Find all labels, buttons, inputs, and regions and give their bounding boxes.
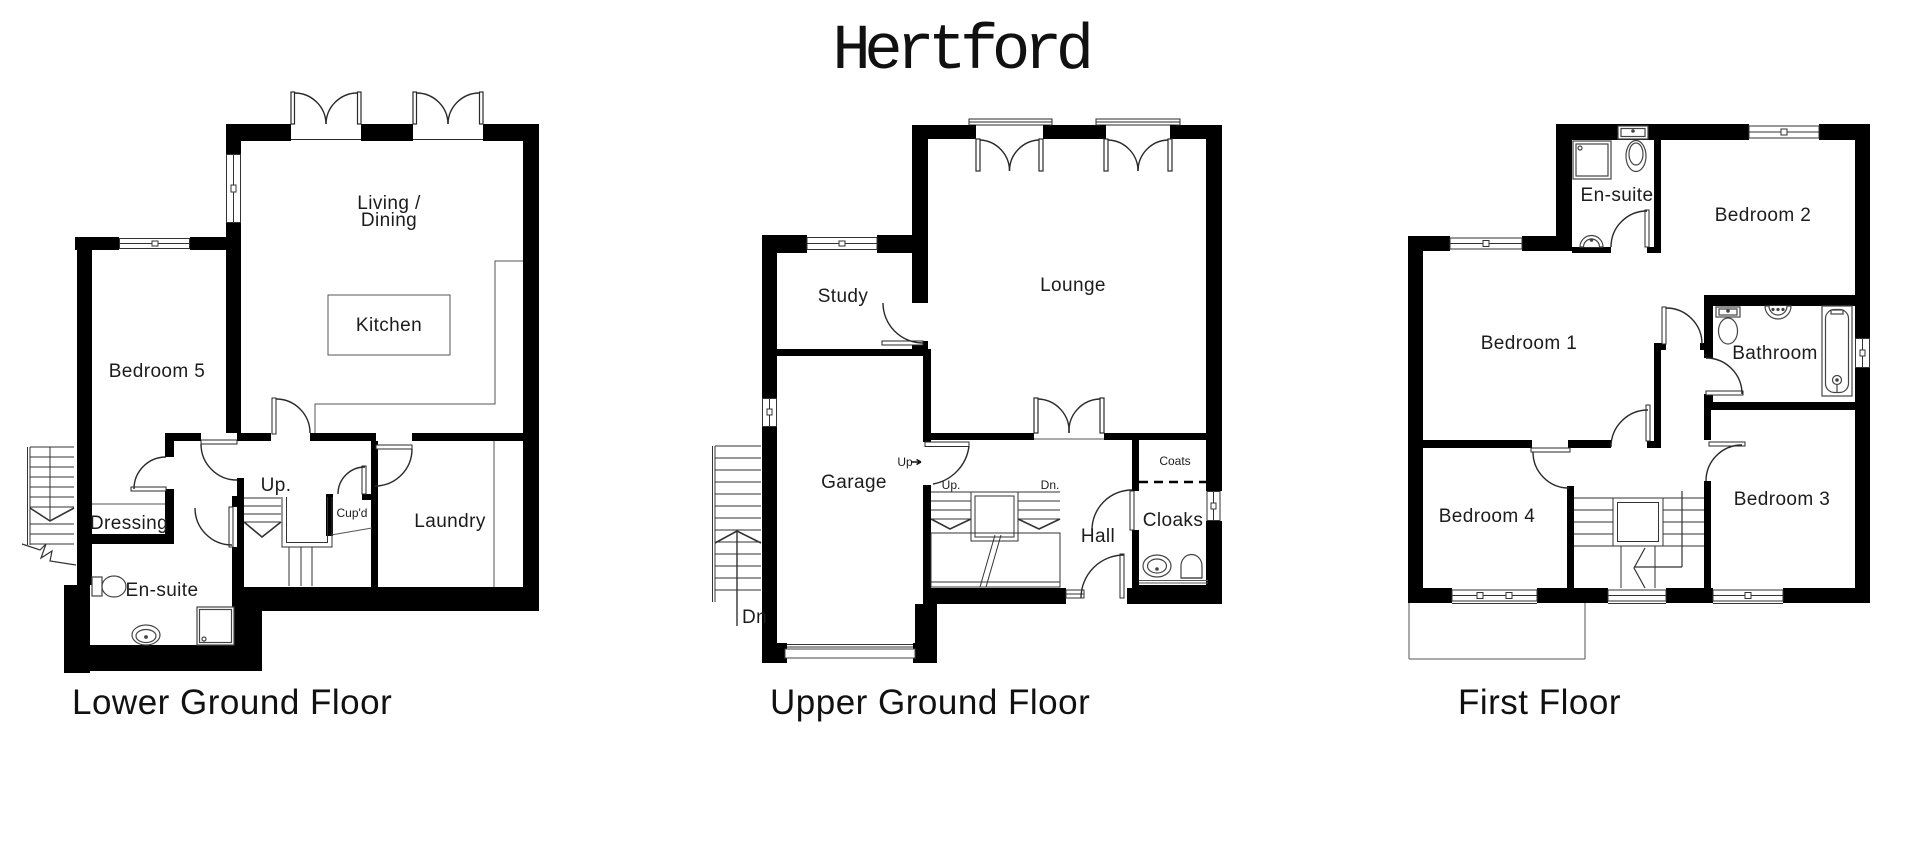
svg-text:Dressing: Dressing xyxy=(90,513,168,534)
svg-text:Garage: Garage xyxy=(821,472,887,493)
svg-text:Upper Ground Floor: Upper Ground Floor xyxy=(770,683,1090,722)
svg-text:En-suite: En-suite xyxy=(126,580,199,601)
svg-text:Hertford: Hertford xyxy=(832,16,1088,88)
svg-text:Up.: Up. xyxy=(261,475,292,496)
svg-text:Dining: Dining xyxy=(361,210,417,231)
svg-text:Lower Ground Floor: Lower Ground Floor xyxy=(72,683,392,722)
svg-text:En-suite: En-suite xyxy=(1581,185,1654,206)
svg-text:Laundry: Laundry xyxy=(414,511,486,532)
svg-text:Dn.: Dn. xyxy=(1041,478,1060,492)
svg-text:Bathroom: Bathroom xyxy=(1732,343,1818,364)
svg-text:First Floor: First Floor xyxy=(1458,683,1621,722)
svg-text:Up.: Up. xyxy=(942,478,961,492)
svg-text:Bedroom 2: Bedroom 2 xyxy=(1715,205,1812,226)
svg-text:Coats: Coats xyxy=(1159,454,1190,468)
svg-text:Bedroom 5: Bedroom 5 xyxy=(109,361,206,382)
svg-text:Cloaks: Cloaks xyxy=(1143,510,1203,531)
svg-text:Study: Study xyxy=(818,286,869,307)
svg-text:Up: Up xyxy=(897,455,913,469)
svg-text:Dn: Dn xyxy=(742,607,767,628)
svg-text:Bedroom 4: Bedroom 4 xyxy=(1439,506,1536,527)
svg-text:Hall: Hall xyxy=(1081,526,1115,547)
svg-text:Lounge: Lounge xyxy=(1040,275,1106,296)
svg-text:Bedroom 3: Bedroom 3 xyxy=(1734,489,1831,510)
svg-text:Cup'd: Cup'd xyxy=(337,506,368,520)
svg-text:Kitchen: Kitchen xyxy=(356,315,422,336)
svg-text:Bedroom 1: Bedroom 1 xyxy=(1481,333,1578,354)
